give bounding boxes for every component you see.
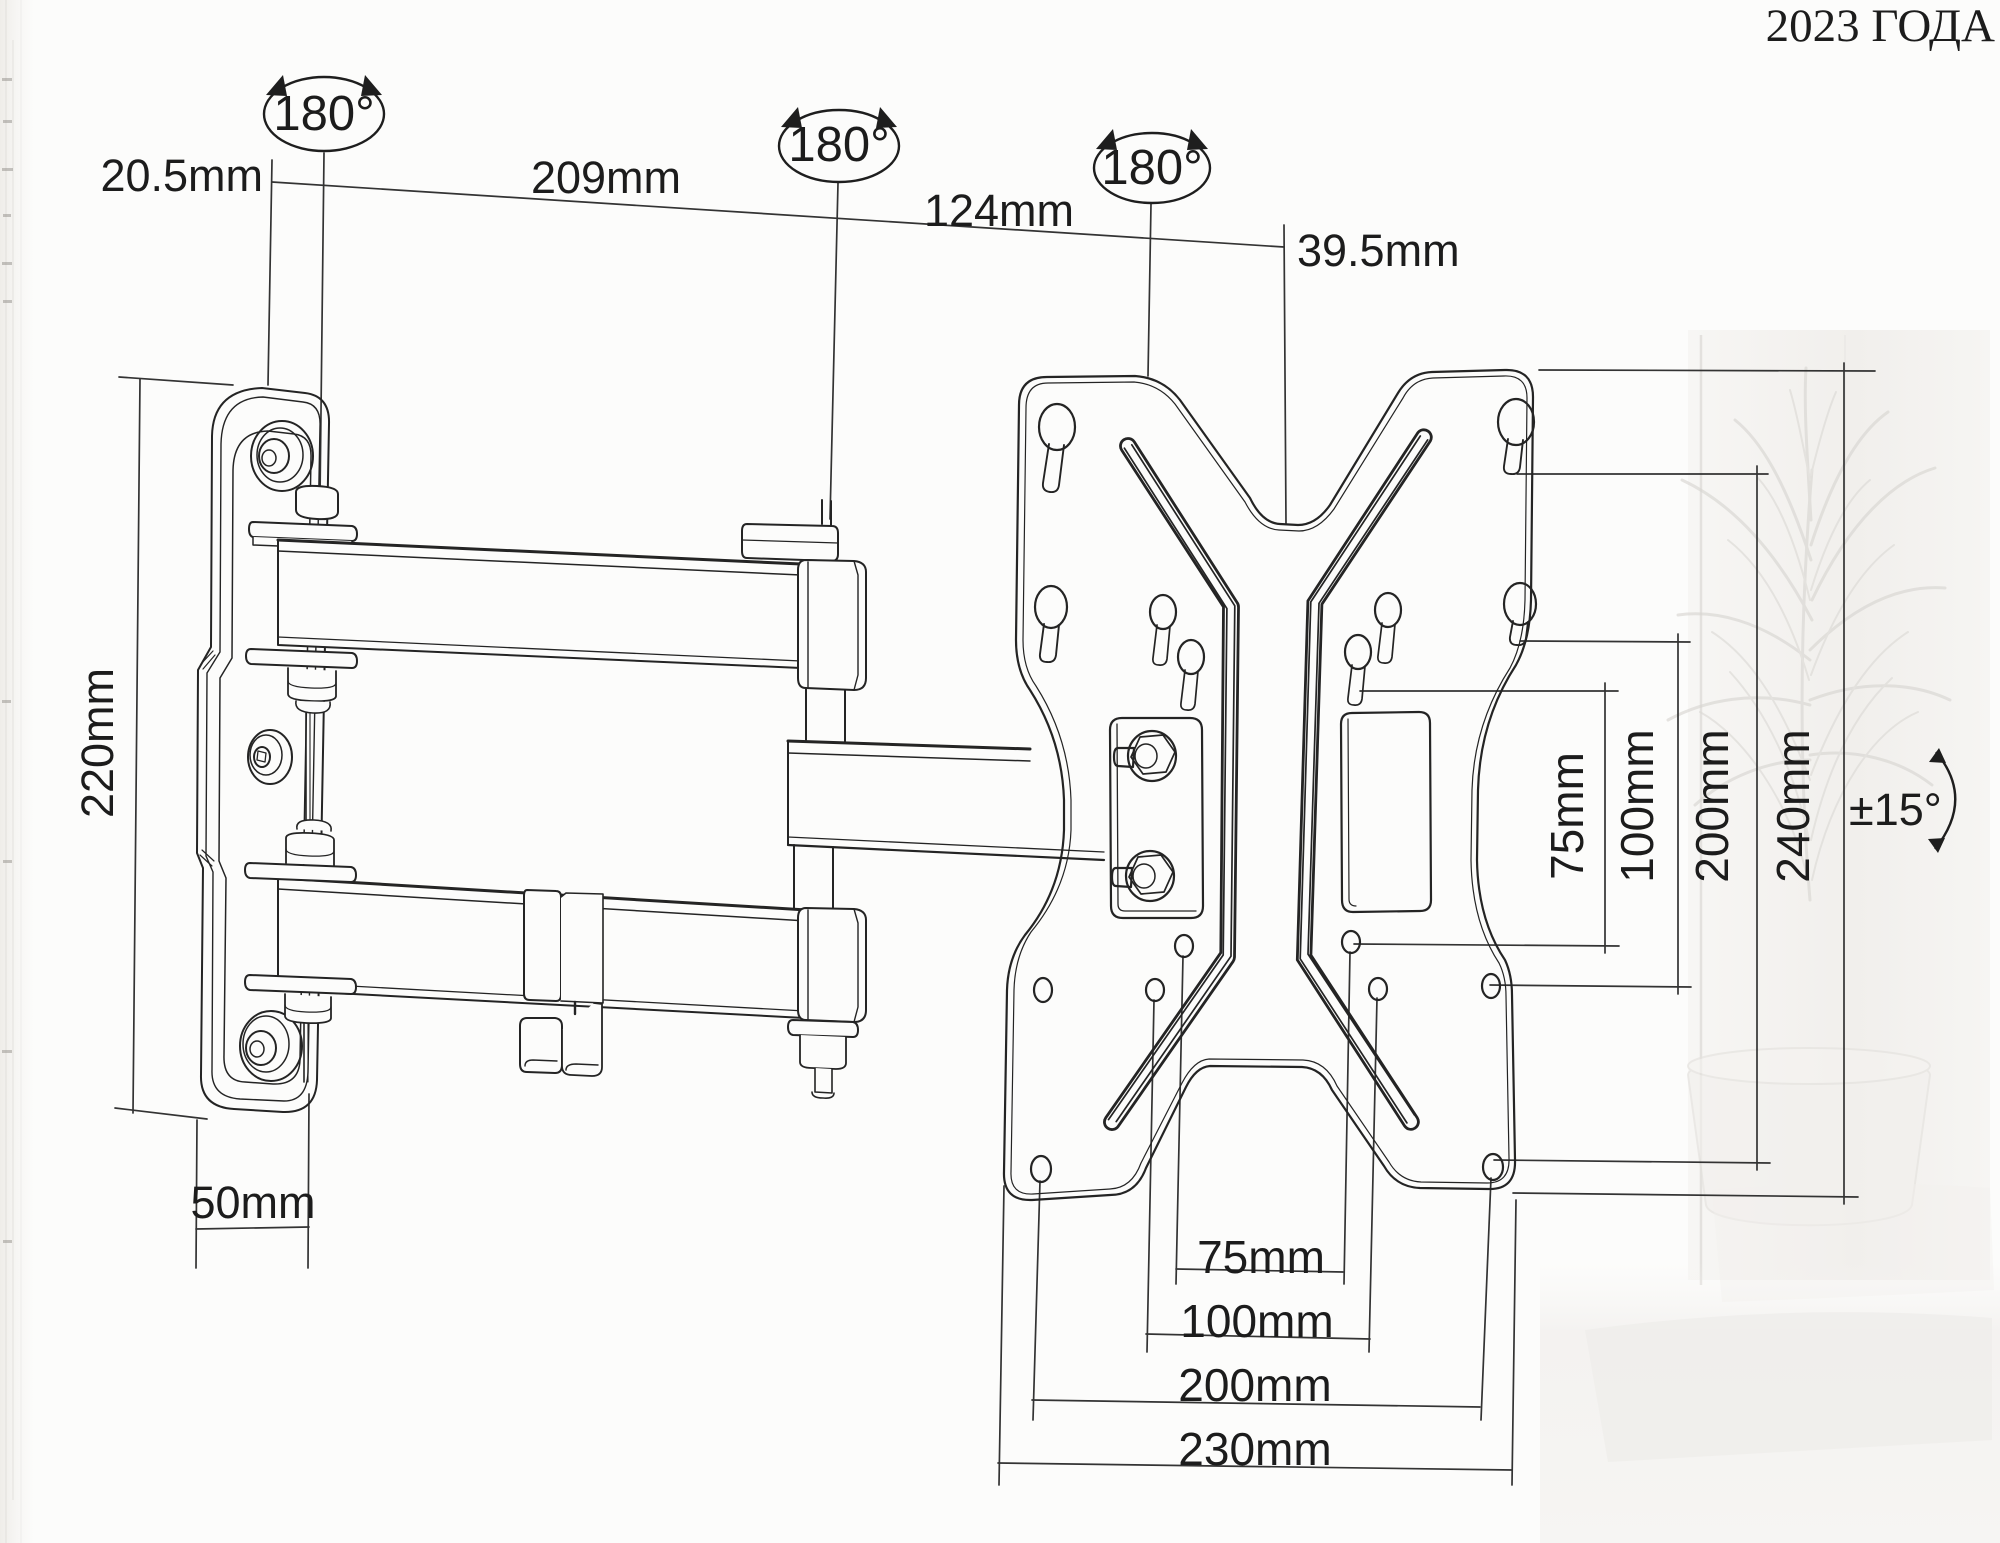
svg-text:240mm: 240mm: [1767, 729, 1819, 882]
svg-text:±15°: ±15°: [1849, 784, 1942, 835]
svg-text:124mm: 124mm: [924, 185, 1074, 236]
svg-text:75mm: 75mm: [1197, 1231, 1325, 1283]
svg-text:230mm: 230mm: [1178, 1423, 1331, 1475]
svg-text:2023 ГОДА: 2023 ГОДА: [1766, 0, 1995, 52]
svg-text:200mm: 200mm: [1178, 1359, 1331, 1411]
svg-text:39.5mm: 39.5mm: [1297, 225, 1460, 276]
svg-text:100mm: 100mm: [1611, 729, 1663, 882]
svg-text:220mm: 220mm: [72, 668, 123, 818]
svg-text:180°: 180°: [788, 118, 889, 172]
svg-text:75mm: 75mm: [1541, 752, 1593, 880]
svg-text:209mm: 209mm: [531, 152, 681, 203]
svg-text:180°: 180°: [273, 87, 374, 141]
svg-text:50mm: 50mm: [190, 1177, 315, 1228]
svg-text:200mm: 200mm: [1686, 729, 1738, 882]
svg-text:100mm: 100mm: [1180, 1295, 1333, 1347]
svg-text:20.5mm: 20.5mm: [100, 150, 263, 201]
